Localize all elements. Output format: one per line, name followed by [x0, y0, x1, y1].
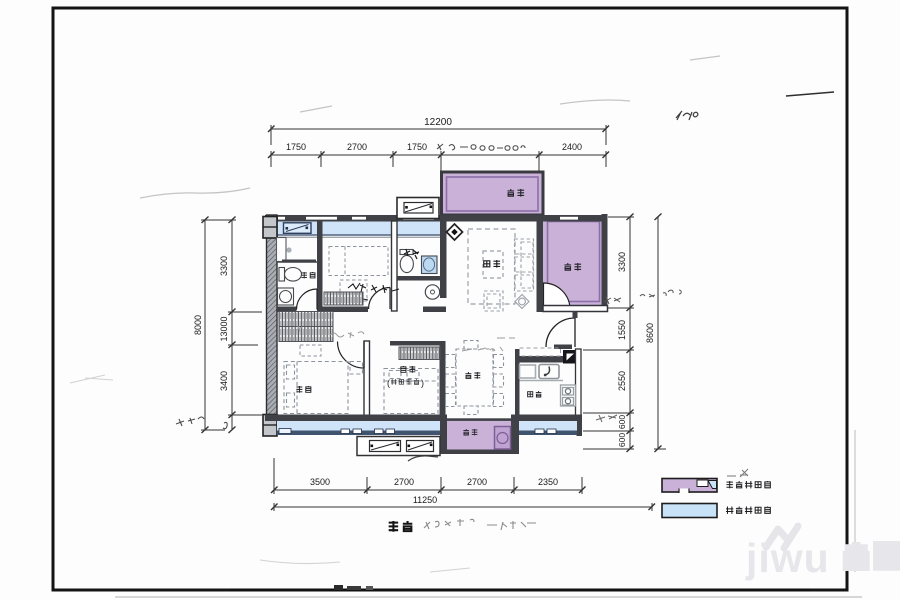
svg-text:2550: 2550 — [617, 371, 627, 391]
svg-text:2700: 2700 — [347, 142, 367, 152]
svg-text:11250: 11250 — [413, 495, 437, 505]
svg-text:2400: 2400 — [562, 142, 582, 152]
svg-text:): ) — [421, 378, 424, 388]
svg-text:2700: 2700 — [394, 477, 414, 487]
svg-text:13000: 13000 — [219, 316, 229, 341]
svg-text:3400: 3400 — [219, 371, 229, 391]
svg-text:3500: 3500 — [310, 477, 330, 487]
svg-text:3300: 3300 — [617, 252, 627, 272]
svg-text:8600: 8600 — [645, 323, 655, 343]
svg-text:600: 600 — [617, 415, 627, 429]
svg-text:12200: 12200 — [424, 117, 452, 128]
svg-text:2350: 2350 — [538, 477, 558, 487]
svg-text:8000: 8000 — [193, 315, 203, 335]
svg-text:1550: 1550 — [617, 320, 627, 340]
svg-text:(: ( — [387, 378, 390, 388]
svg-text:1750: 1750 — [407, 142, 427, 152]
svg-text:3300: 3300 — [219, 256, 229, 276]
svg-text:jiwu: jiwu — [745, 535, 830, 581]
svg-text:1750: 1750 — [286, 142, 306, 152]
svg-text:2700: 2700 — [467, 477, 487, 487]
svg-text:600: 600 — [617, 433, 627, 447]
